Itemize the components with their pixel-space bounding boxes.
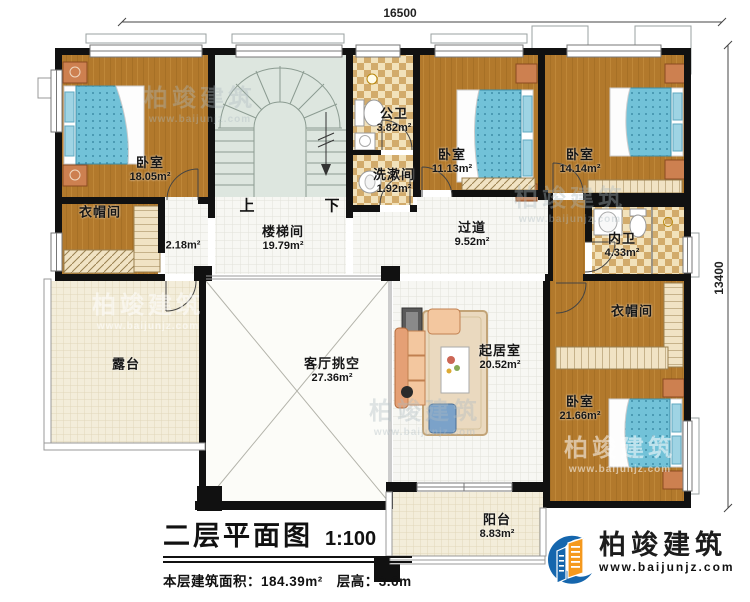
room-label-closet-br: 衣帽间 (611, 305, 653, 320)
nightstand (663, 379, 684, 397)
nightstand (665, 64, 686, 83)
title-underline (163, 556, 412, 563)
basin-icon (367, 74, 377, 84)
wardrobe (588, 180, 682, 193)
room-label-bedroom-tl: 卧室 18.05m² (130, 156, 171, 184)
column (381, 266, 400, 281)
column (197, 486, 222, 511)
room-label-ensuite: 内卫 4.33m² (605, 232, 640, 260)
room-label-balcony: 阳台 8.83m² (480, 513, 515, 541)
window-sill-outline (232, 34, 344, 43)
terrace-parapet (44, 443, 205, 450)
floor-balcony (392, 492, 543, 556)
stair-up-label: 上 (239, 195, 254, 216)
terrace-parapet (44, 279, 51, 449)
wardrobe (64, 250, 134, 273)
room-label-bedroom-tm: 卧室 11.13m² (432, 148, 472, 176)
wardrobe (556, 347, 668, 369)
floor-lamp-icon (401, 386, 413, 398)
floor-height-value: 3.6m (379, 574, 412, 589)
sink-icon (599, 212, 617, 232)
floor-height-label: 层高： (337, 574, 379, 589)
room-label-bedroom-br: 卧室 21.66m² (560, 395, 601, 423)
nightstand (63, 165, 87, 186)
nightstand (516, 64, 537, 83)
room-label-hallway: 过道 9.52m² (455, 221, 490, 249)
floors-layer (50, 55, 684, 556)
floor-plan-canvas: 柏竣建筑 www.baijunjz.com 柏竣建筑 www.baijunjz.… (0, 0, 750, 602)
floor-area-value: 184.39m² (261, 574, 323, 589)
dimension-top-width: 16500 (383, 6, 416, 20)
floor-hallway (353, 212, 417, 274)
room-label-terrace: 露台 (112, 358, 140, 373)
floor-small-corridor (165, 197, 208, 274)
floor-lobby (553, 200, 585, 281)
brand-name: 柏竣建筑 (599, 531, 735, 559)
building-logo-icon (543, 531, 593, 589)
nightstand (665, 160, 686, 179)
room-label-stair-hall: 楼梯间 19.79m² (262, 225, 304, 253)
plan-scale: 1:100 (325, 528, 376, 551)
nightstand (63, 62, 87, 83)
plan-stats: 本层建筑面积：184.39m²层高：3.6m (163, 570, 412, 590)
wardrobe (134, 206, 160, 272)
armchair (429, 404, 456, 433)
void-railing (389, 281, 391, 482)
room-label-public-bath: 公卫 3.82m² (377, 107, 412, 135)
title-block: 二层平面图 1:100 本层建筑面积：184.39m²层高：3.6m (163, 514, 412, 590)
wardrobe (462, 178, 535, 190)
room-label-bedroom-tr: 卧室 14.14m² (560, 148, 601, 176)
floor-plan-drawing (0, 0, 750, 602)
plan-title: 二层平面图 (163, 514, 313, 553)
room-label-sitting-room: 起居室 20.52m² (479, 344, 521, 372)
void-railing (206, 276, 381, 279)
brand-website: www.baijunjz.com (599, 560, 735, 574)
floor-area-label: 本层建筑面积： (163, 574, 261, 589)
room-label-closet-tl: 衣帽间 (79, 206, 121, 221)
window-sill-outline (431, 34, 527, 43)
room-label-small-corridor: 2.18m² (166, 240, 201, 253)
room-label-living-void: 客厅挑空 27.36m² (304, 357, 360, 385)
dimension-right-height: 13400 (712, 261, 726, 294)
room-label-wash-room: 洗漱间 1.92m² (373, 168, 415, 196)
window-sill-outline (86, 34, 206, 43)
brand-logo: 柏竣建筑 www.baijunjz.com (543, 531, 735, 589)
armchair (428, 309, 460, 334)
nightstand (663, 471, 684, 489)
stair-down-label: 下 (324, 195, 339, 216)
